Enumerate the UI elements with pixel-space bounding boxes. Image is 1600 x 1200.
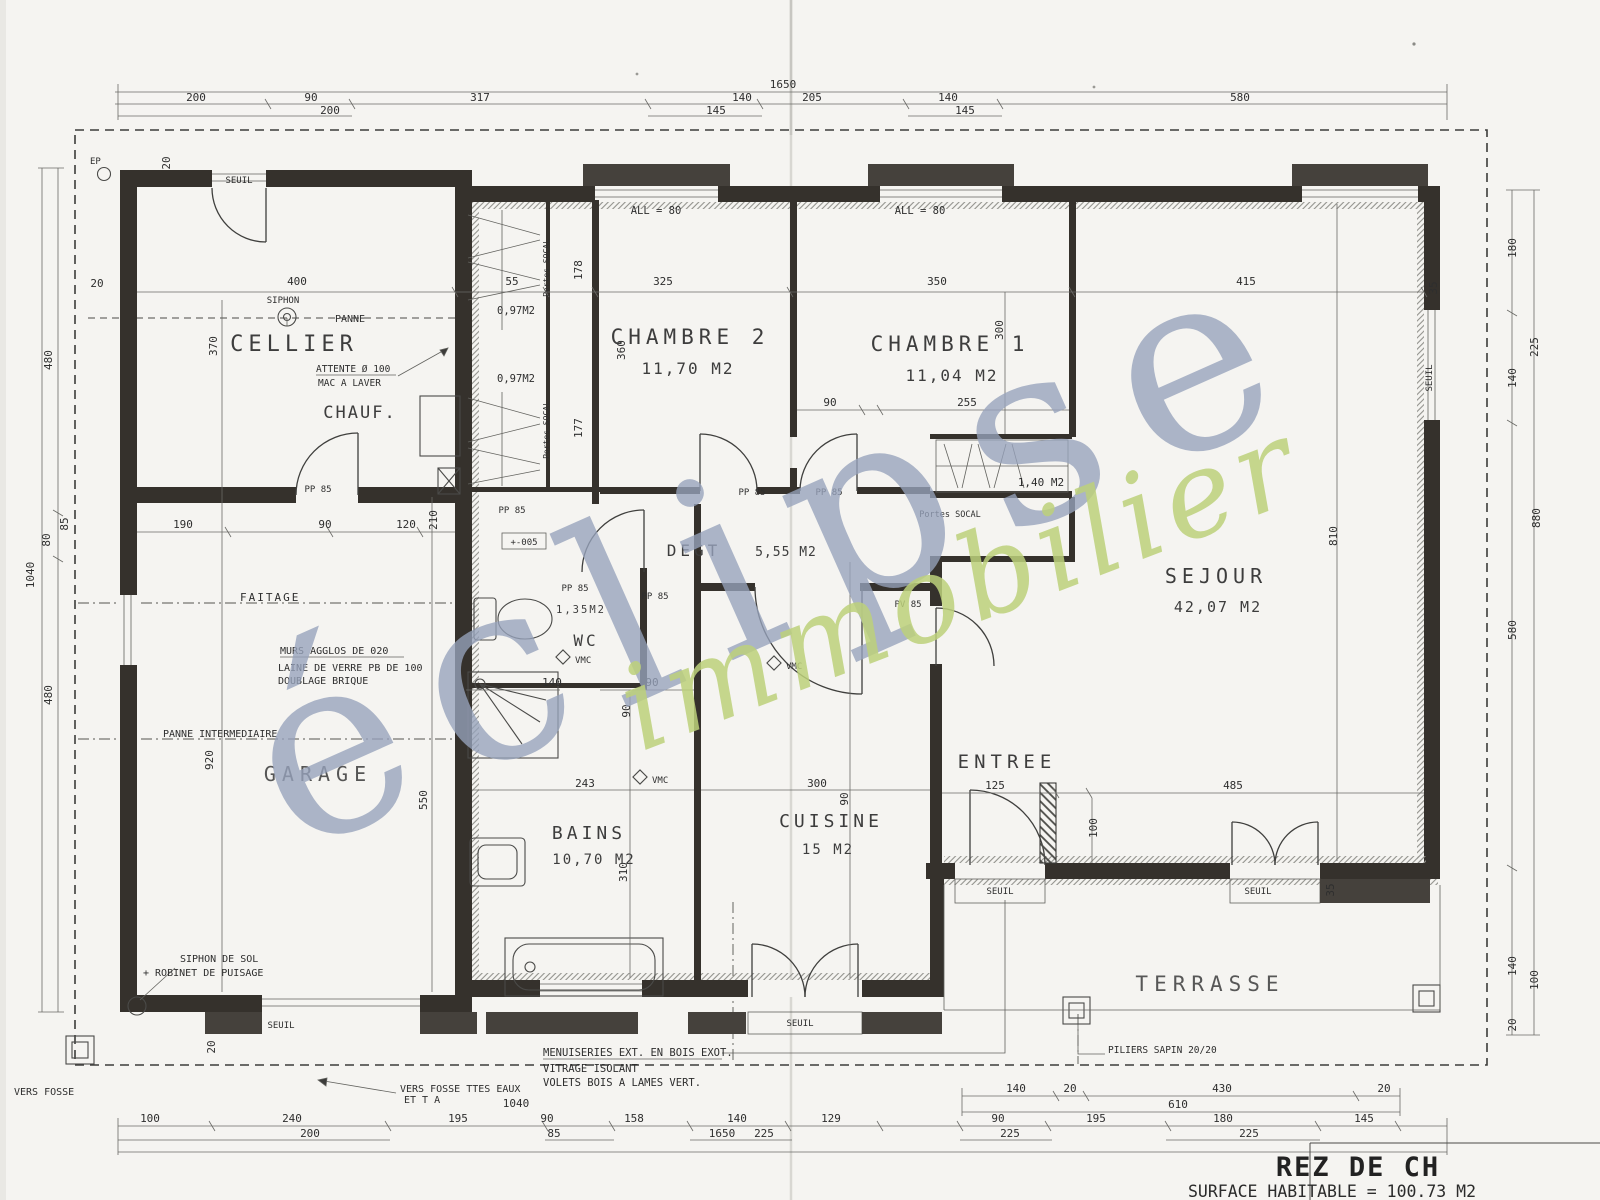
door-swing-entree-interieure (936, 608, 994, 666)
robinet-label: + ROBINET DE PUISAGE (143, 968, 263, 979)
vers-fosse-note: VERS FOSSE TTES EAUX (400, 1084, 520, 1095)
dim-top2: 145 (955, 104, 975, 117)
dim-right: 20 (1506, 1018, 1519, 1031)
dim-inner: 90 (823, 396, 836, 409)
dim-top-total: 1650 (770, 78, 797, 91)
pilier-terrasse-2 (1413, 985, 1440, 1012)
ep-downpipe (98, 168, 111, 181)
placard-area: 1,40 M2 (1018, 476, 1064, 489)
panne-label: PANNE (335, 314, 365, 325)
level-mark: +-005 (502, 533, 546, 549)
vers-fosse-gauche: VERS FOSSE (14, 1087, 74, 1098)
allege-label: ALL = 80 (631, 205, 682, 217)
niveau-label: +-005 (510, 538, 537, 548)
dim-right: 580 (1506, 620, 1519, 640)
volets-note: VOLETS BOIS A LAMES VERT. (543, 1077, 701, 1089)
dim-inner: 210 (427, 510, 440, 530)
faitage-label: FAITAGE (240, 591, 300, 604)
dim-top2: 145 (706, 104, 726, 117)
door-swing-chambre2 (700, 434, 757, 491)
dim-inner: 90 (318, 518, 331, 531)
dim-1040: 1040 (503, 1097, 530, 1110)
pp85-label: PP 85 (561, 584, 588, 594)
floor-plan-drawing: 1650 200 90 317 140 205 140 580 200 145 … (0, 0, 1600, 1200)
dim-bottom2: 225 (1000, 1127, 1020, 1140)
dim-bottom: 90 (991, 1112, 1004, 1125)
room-label-chambre2: CHAMBRE 2 (611, 325, 770, 349)
dim-right: 180 (1506, 238, 1519, 258)
dim-top: 200 (186, 91, 206, 104)
dim-inner: 178 (572, 260, 585, 280)
dim-left: 80 (40, 533, 53, 546)
door-swing-entree (970, 790, 1045, 865)
dim-bottom3: 140 (1006, 1082, 1026, 1095)
dim-right: 100 (1528, 970, 1541, 990)
dim-left: 1040 (24, 562, 37, 589)
dim-inner: 120 (396, 518, 416, 531)
portes-socal-label: Portes SOCAL (542, 239, 551, 297)
room-area-cuisine: 15 M2 (802, 842, 854, 858)
dim-inner: 300 (807, 777, 827, 790)
placard-area: 0,97M2 (497, 373, 535, 385)
dim-inner: 177 (572, 418, 585, 438)
dim-inner: 243 (575, 777, 595, 790)
dim-top: 205 (802, 91, 822, 104)
dim-inner: 55 (505, 275, 518, 288)
room-label-cuisine: CUISINE (779, 811, 883, 832)
seuil-label: SEUIL (1244, 887, 1271, 897)
dim-top: 580 (1230, 91, 1250, 104)
floor-plan-page: 1650 200 90 317 140 205 140 580 200 145 … (0, 0, 1600, 1200)
toilet (474, 598, 552, 640)
surface-title: SURFACE HABITABLE = 100.73 M2 (1188, 1182, 1476, 1200)
dim-inner: 415 (1236, 275, 1256, 288)
dim-bottom: 90 (540, 1112, 553, 1125)
vmc-label: VMC (575, 656, 591, 666)
dim-inner: 20 (205, 1040, 218, 1053)
dim-right: 880 (1530, 508, 1543, 528)
dim-top: 317 (470, 91, 490, 104)
siphon-de-sol-label: SIPHON DE SOL (180, 954, 258, 965)
exterior-walls (120, 170, 1440, 1012)
dim-top: 90 (304, 91, 317, 104)
dim-inner: 20 (160, 156, 173, 169)
dim-bottom: 100 (140, 1112, 160, 1125)
door-swing-wc (582, 510, 644, 572)
dim-inner: 550 (417, 790, 430, 810)
seuil-label: SEUIL (225, 176, 252, 186)
dim-inner: 90 (838, 792, 851, 805)
dim-inner: 370 (207, 336, 220, 356)
portes-socal-label: Portes SOCAL (542, 401, 551, 459)
room-area-chambre2: 11,70 M2 (641, 359, 734, 378)
pp85-label: PP 85 (498, 506, 525, 516)
seuil-label: SEUIL (267, 1021, 294, 1031)
room-label-degt: DEGT (667, 541, 722, 560)
window-chambre1 (868, 164, 1014, 202)
room-area-bains: 10,70 M2 (552, 852, 635, 868)
dim-bottom3: 20 (1377, 1082, 1390, 1095)
dim-bottom: 195 (448, 1112, 468, 1125)
window-chambre2 (583, 164, 730, 202)
door-swing-cuisine (755, 587, 862, 694)
dim-inner: 125 (985, 779, 1005, 792)
floor-title: REZ DE CH (1276, 1152, 1440, 1183)
pp85-label: PP 85 (304, 485, 331, 495)
room-label-cellier: CELLIER (230, 332, 358, 357)
dim-bottom3: 430 (1212, 1082, 1232, 1095)
dim-bottom2: 225 (1239, 1127, 1259, 1140)
seuil-label: SEUIL (1425, 364, 1435, 391)
dim-bottom: 240 (282, 1112, 302, 1125)
dim-top2: 200 (320, 104, 340, 117)
dim-inner: 35 (1324, 883, 1337, 896)
vmc-bouche-bains (633, 770, 647, 784)
boiler (420, 396, 460, 494)
dim-bottom: 129 (821, 1112, 841, 1125)
poteau-hache (1040, 783, 1056, 863)
dim-bottom: 140 (727, 1112, 747, 1125)
room-area-degt: 5,55 M2 (755, 545, 817, 560)
pp85-label: PP 85 (641, 592, 668, 602)
dim-left: 85 (58, 517, 71, 530)
dim-bottom2: 85 (547, 1127, 560, 1140)
dim-right: 140 (1506, 368, 1519, 388)
dim-inner: 20 (90, 277, 103, 290)
dim-bottom2: 1650 (709, 1127, 736, 1140)
dim-inner: 325 (653, 275, 673, 288)
dim-inner: 255 (957, 396, 977, 409)
annotation-text: EP SEUIL SEUIL SEUIL SEUIL SEUIL SEUIL A… (14, 157, 1435, 1106)
vmc-bouche-cuisine (767, 656, 781, 670)
room-label-sejour: SEJOUR (1165, 564, 1267, 588)
dim-inner: 920 (203, 750, 216, 770)
pv85-label: PV 85 (894, 600, 921, 610)
attente-label: ATTENTE Ø 100 (316, 364, 391, 375)
dim-inner: 90 (620, 704, 633, 717)
allege-label: ALL = 80 (895, 205, 946, 217)
portes-socal-label: Portes SOCAL (919, 510, 980, 520)
room-label-wc: WC (573, 631, 598, 650)
mac-a-laver-label: MAC A LAVER (318, 378, 381, 389)
dim-bottom3: 20 (1063, 1082, 1076, 1095)
dim-inner: 400 (287, 275, 307, 288)
piliers-note: PILIERS SAPIN 20/20 (1108, 1045, 1217, 1056)
doublage-note: DOUBLAGE BRIQUE (278, 676, 368, 687)
dim-inner: 35 (1427, 281, 1440, 294)
room-label-bains: BAINS (552, 823, 626, 844)
dim-bottom: 158 (624, 1112, 644, 1125)
dim-bottom2: 200 (300, 1127, 320, 1140)
pilier-terrasse-1 (1063, 997, 1090, 1024)
dim-inner: 350 (927, 275, 947, 288)
room-area-wc: 1,35M2 (556, 604, 606, 616)
dim-bottom2: 225 (754, 1127, 774, 1140)
door-swing-cellier-entry (212, 188, 266, 242)
dim-bottom: 195 (1086, 1112, 1106, 1125)
dim-inner: 90 (645, 676, 658, 689)
vmc-bouche-wc (556, 650, 570, 664)
title-block: REZ DE CH SURFACE HABITABLE = 100.73 M2 (1188, 1143, 1600, 1200)
dim-top: 140 (938, 91, 958, 104)
door-swing-chambre1 (800, 434, 857, 491)
seuil-label: SEUIL (986, 887, 1013, 897)
vitrage-note: VITRAGE ISOLANT (543, 1063, 639, 1075)
room-label-terrasse: TERRASSE (1135, 972, 1284, 996)
window-sejour-top (1292, 164, 1428, 202)
vmc-label: VMC (652, 776, 668, 786)
room-label-chambre1: CHAMBRE 1 (871, 332, 1030, 356)
dim-inner: 140 (542, 676, 562, 689)
dim-bottom: 180 (1213, 1112, 1233, 1125)
room-area-chambre1: 11,04 M2 (905, 366, 998, 385)
room-label-entree: ENTREE (958, 751, 1057, 773)
dim-inner: 100 (1087, 818, 1100, 838)
dim-inner: 810 (1327, 526, 1340, 546)
vers-fosse-note2: ET T A (404, 1095, 440, 1106)
dim-left: 480 (42, 685, 55, 705)
dim-bottom: 145 (1354, 1112, 1374, 1125)
room-label-chauf: CHAUF. (323, 403, 396, 423)
door-garage-side (120, 595, 137, 665)
regard-fosse (66, 1036, 94, 1064)
dim-bottom-total: 610 (1168, 1098, 1188, 1111)
dim-right: 140 (1506, 956, 1519, 976)
dim-top: 140 (732, 91, 752, 104)
seuil-label: SEUIL (786, 1019, 813, 1029)
dim-left: 480 (42, 350, 55, 370)
pp85-label: PP 85 (738, 488, 765, 498)
placard-area: 0,97M2 (497, 305, 535, 317)
room-area-sejour: 42,07 M2 (1174, 598, 1262, 616)
panne-intermediaire-label: PANNE INTERMEDIAIRE (163, 729, 277, 740)
room-labels: CELLIER CHAUF. CHAMBRE 2 11,70 M2 CHAMBR… (230, 325, 1284, 996)
pp85-label: PP 85 (815, 488, 842, 498)
dim-inner: 485 (1223, 779, 1243, 792)
vmc-label: VMC (786, 662, 802, 672)
murs-note: MURS AGGLOS DE 020 (280, 646, 388, 657)
siphon-label: SIPHON (267, 296, 300, 306)
ep-label: EP (90, 157, 101, 167)
dim-inner: 190 (173, 518, 193, 531)
laine-note: LAINE DE VERRE PB DE 100 (278, 663, 423, 674)
menuiseries-note: MENUISERIES EXT. EN BOIS EXOT. (543, 1047, 733, 1059)
dim-right: 225 (1528, 337, 1541, 357)
room-label-garage: GARAGE (264, 762, 372, 786)
